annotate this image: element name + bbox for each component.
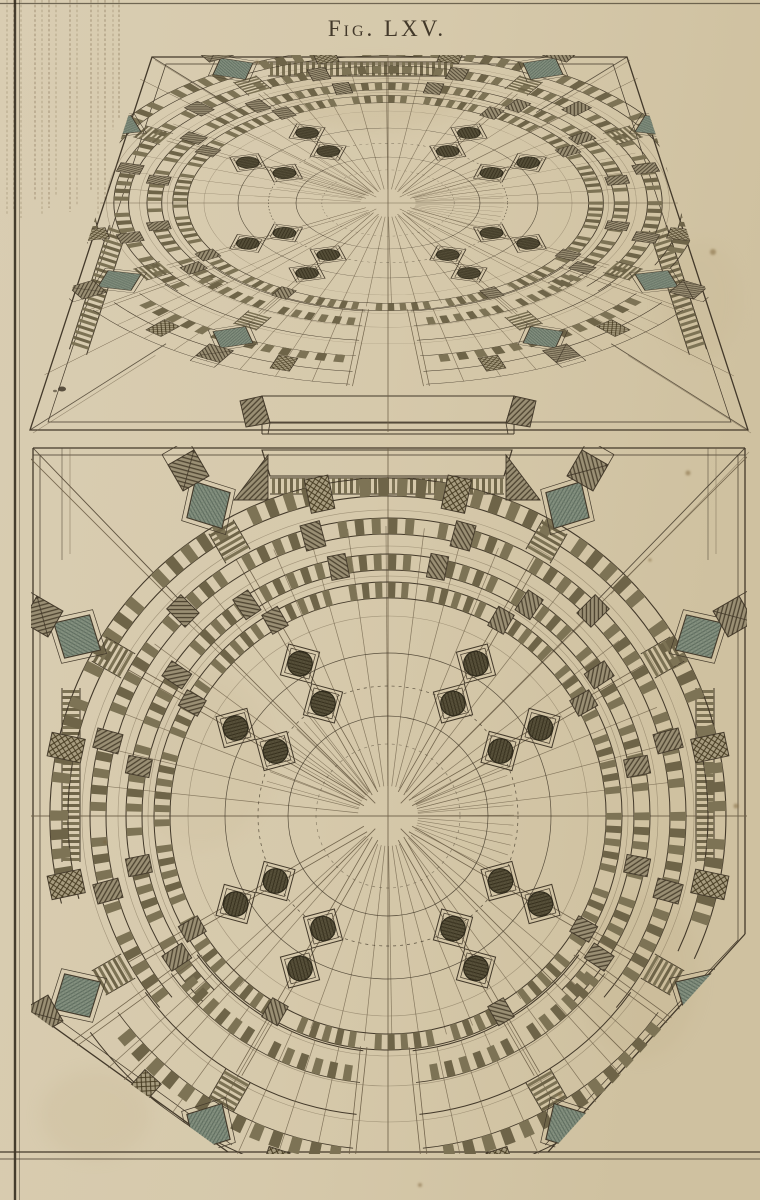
engraved-plate-page: Fig. LXV.	[0, 0, 760, 1200]
engraving-plate: Fig. LXV.	[0, 0, 760, 1200]
figure-title: Fig. LXV.	[328, 16, 446, 41]
